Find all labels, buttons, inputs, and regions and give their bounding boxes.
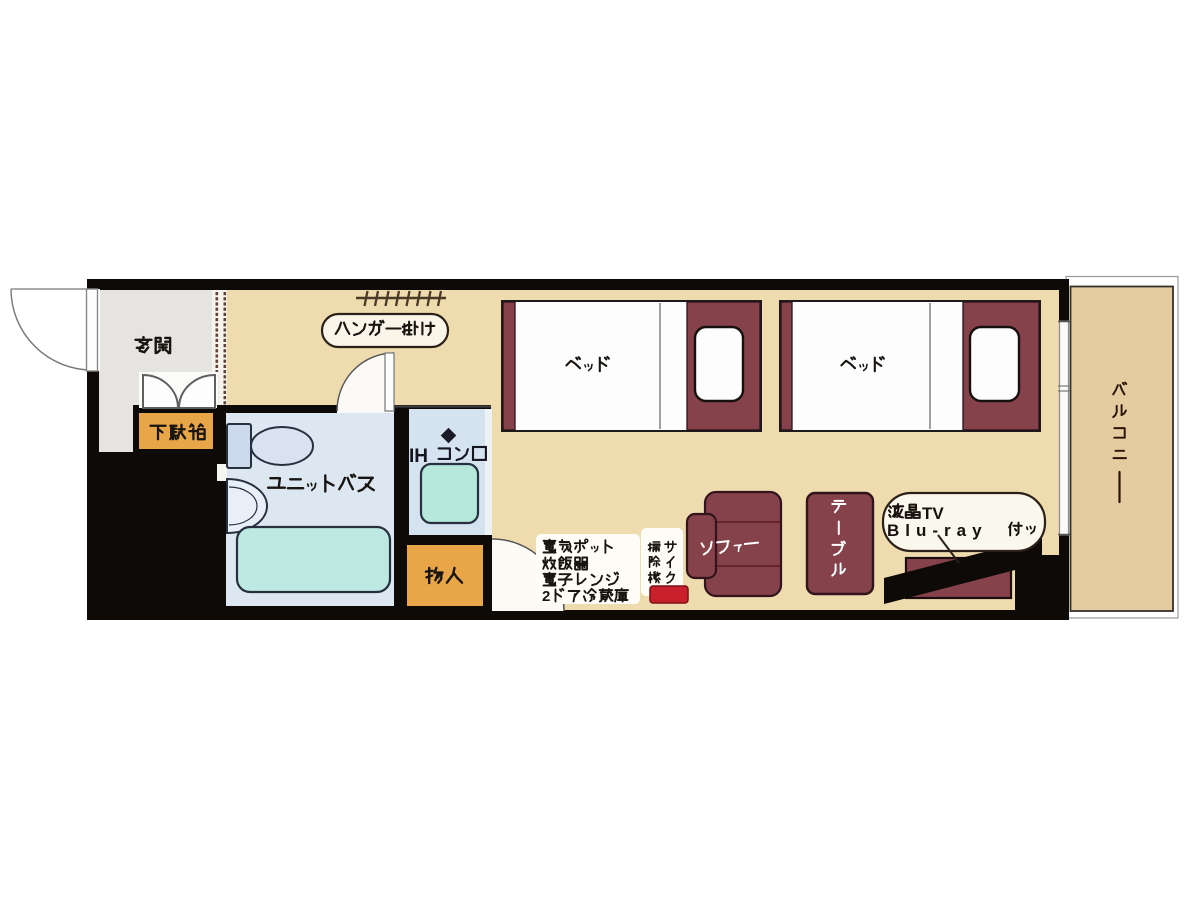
svg-text:Blu-ray: Blu-ray xyxy=(887,521,988,540)
svg-text:2: 2 xyxy=(542,588,550,605)
svg-text:IH: IH xyxy=(409,446,428,467)
